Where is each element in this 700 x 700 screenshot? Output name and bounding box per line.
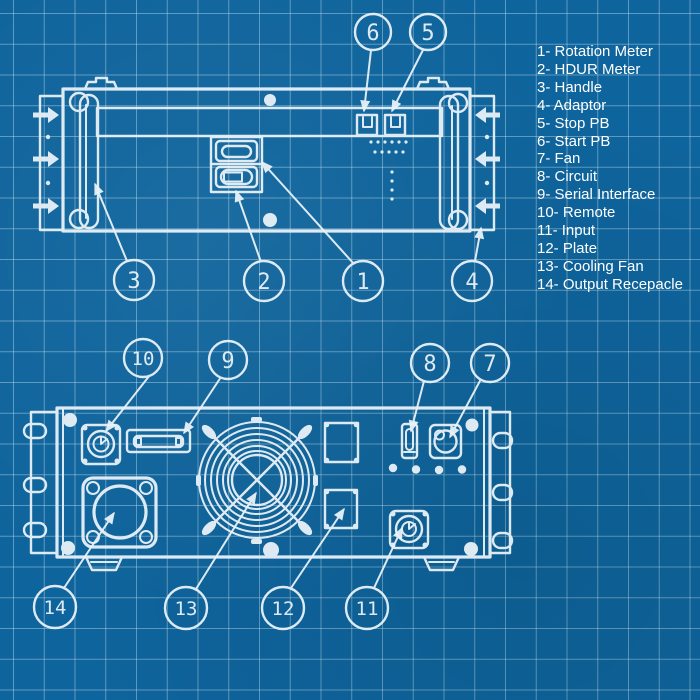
screw-top-center: [264, 94, 276, 106]
callout-number: 14: [44, 597, 67, 619]
screw-top-right: [466, 419, 479, 432]
callout-leader-line: [106, 375, 150, 431]
callout-5: 5: [392, 14, 446, 111]
callout-number: 12: [272, 598, 295, 620]
mount-slot: [24, 478, 46, 492]
callout-9: 9: [184, 341, 247, 433]
callout-7: 7: [450, 344, 509, 437]
rear-left-rack-ear: [24, 412, 57, 553]
callout-number: 6: [366, 21, 379, 46]
meter-stack: [211, 137, 262, 192]
rear-right-rack-ear: [490, 412, 512, 553]
legend-item-4: 4- Adaptor: [537, 97, 697, 115]
callout-number: 3: [127, 269, 140, 294]
callout-10: 10: [106, 339, 162, 431]
callout-8: 8: [411, 344, 449, 431]
legend-item-1: 1- Rotation Meter: [537, 43, 697, 61]
parts-legend: 1- Rotation Meter 2- HDUR Meter 3- Handl…: [537, 43, 697, 294]
legend-item-14: 14- Output Recepacle: [537, 276, 697, 294]
front-chassis-outline: [63, 78, 470, 231]
remote-connector: [82, 425, 120, 464]
legend-item-6: 6- Start PB: [537, 133, 697, 151]
callout-6: 6: [355, 14, 391, 111]
rear-panel-drawing: [24, 408, 512, 570]
callout-leader-line: [411, 381, 424, 431]
rear-callouts: 10 9 8 7 14 13 12: [34, 339, 509, 629]
callout-leader-line: [95, 184, 127, 261]
airflow-arrow: [475, 198, 500, 214]
cooling-fan-grille: [196, 417, 318, 544]
screw-bottom-right: [464, 542, 478, 556]
legend-item-7: 7- Fan: [537, 150, 697, 168]
callout-number: 7: [483, 352, 496, 377]
airflow-arrow: [475, 107, 500, 123]
front-panel-drawing: [33, 78, 500, 231]
airflow-arrow: [33, 198, 59, 214]
callout-number: 8: [423, 352, 436, 377]
top-tab-right: [417, 78, 449, 89]
callout-number: 4: [465, 270, 478, 295]
callout-3: 3: [95, 184, 154, 300]
legend-item-8: 8- Circuit: [537, 168, 697, 186]
callout-number: 2: [257, 270, 270, 295]
callout-leader-line: [184, 377, 221, 433]
callout-leader-line: [364, 50, 371, 111]
foot-left: [86, 557, 122, 570]
airflow-arrow: [475, 151, 500, 167]
circuit-breaker: [402, 424, 417, 458]
mount-slot: [24, 523, 46, 537]
left-rack-ear: [33, 96, 63, 230]
stop-button: [385, 115, 405, 135]
right-rack-ear: [470, 96, 500, 230]
foot-right: [424, 557, 459, 570]
screw-bottom-center: [263, 542, 279, 558]
plate-upper: [325, 423, 358, 462]
serial-interface-slot: [127, 430, 190, 452]
callout-2: 2: [236, 191, 284, 301]
legend-item-2: 2- HDUR Meter: [537, 61, 697, 79]
legend-item-9: 9- Serial Interface: [537, 186, 697, 204]
blueprint-page: 6 5 3 2 1 4: [0, 0, 700, 700]
legend-item-5: 5- Stop PB: [537, 115, 697, 133]
callout-number: 11: [356, 598, 379, 620]
legend-item-3: 3- Handle: [537, 79, 697, 97]
screw-top-left: [63, 413, 77, 427]
output-receptacle: [83, 478, 156, 547]
callout-number: 5: [421, 21, 434, 46]
callout-number: 1: [356, 270, 369, 295]
front-handle-left: [70, 93, 98, 228]
mounting-dots: [389, 464, 466, 474]
vent-dots: [369, 140, 407, 200]
callout-leader-line: [475, 228, 481, 261]
callout-number: 9: [221, 349, 234, 374]
legend-item-12: 12- Plate: [537, 240, 697, 258]
callout-4: 4: [452, 228, 492, 301]
top-tab-left: [85, 78, 117, 89]
callout-leader-line: [236, 191, 261, 262]
screw-bottom-center: [263, 213, 277, 227]
legend-item-13: 13- Cooling Fan: [537, 258, 697, 276]
mount-slot: [24, 424, 46, 438]
start-button: [357, 115, 377, 135]
airflow-arrow: [33, 107, 59, 123]
front-handle-right: [440, 94, 467, 229]
plate-lower: [325, 490, 357, 528]
airflow-arrow: [33, 151, 59, 167]
fan-connector: [430, 425, 461, 458]
front-callouts: 6 5 3 2 1 4: [95, 14, 492, 301]
callout-leader-line: [262, 162, 354, 264]
screw-bottom-left: [61, 541, 75, 555]
legend-item-10: 10- Remote: [537, 204, 697, 222]
legend-item-11: 11- Input: [537, 222, 697, 240]
callout-leader-line: [392, 50, 423, 111]
callout-number: 10: [132, 348, 155, 370]
callout-number: 13: [175, 598, 198, 620]
